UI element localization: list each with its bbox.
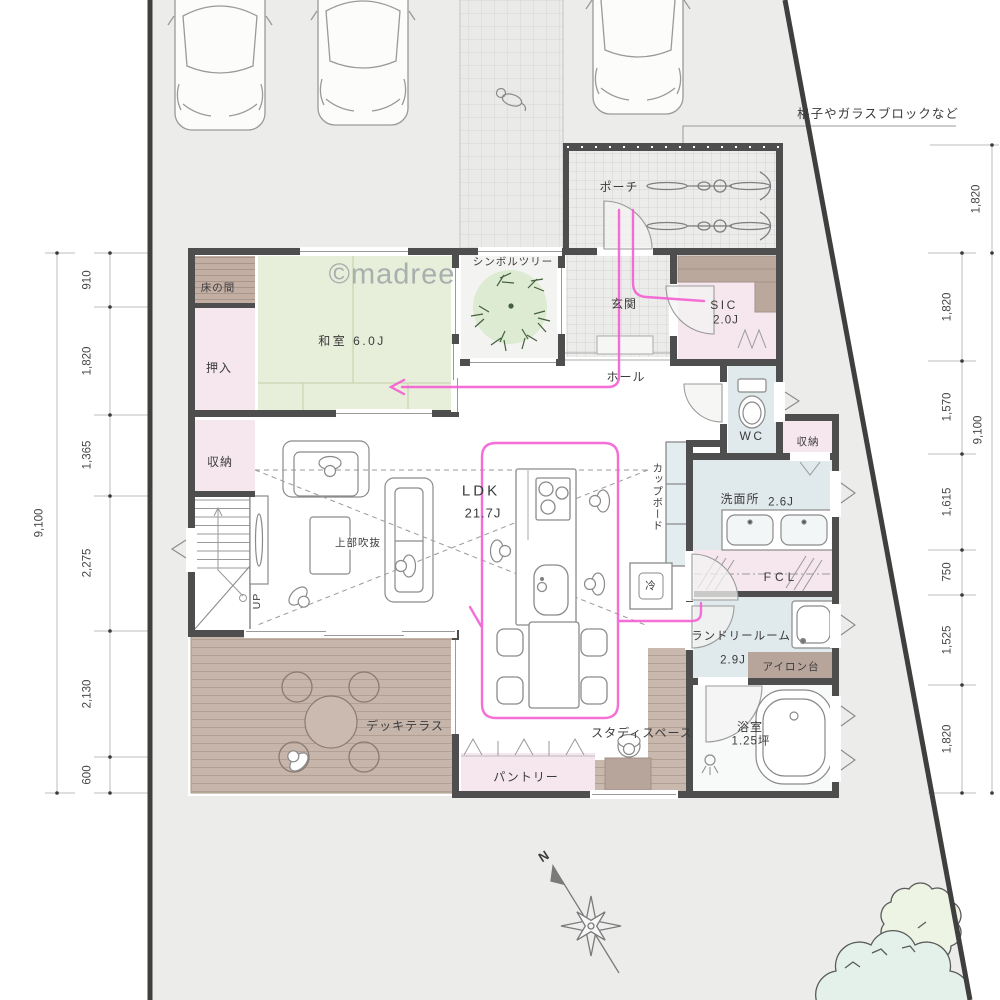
laundry-size-label: 2.9J (720, 655, 746, 667)
dining-chair (497, 629, 523, 656)
dim-right-2: 1,615 (942, 488, 954, 517)
sofa-2 (385, 478, 433, 602)
oshiire-label: 押入 (206, 362, 232, 374)
deck-terrace (191, 635, 457, 793)
toilet-tank (738, 379, 766, 392)
dim-right-3: 750 (942, 562, 954, 581)
ldk-size-label: 21.7J (465, 507, 502, 520)
study-label: スタディスペース (591, 727, 693, 739)
bath-label: 浴室 (737, 721, 763, 733)
deck-label: デッキテラス (366, 720, 444, 732)
cupboard-label: カップボード (652, 463, 663, 532)
washroom-size-label: 2.6J (768, 497, 794, 509)
symbol-tree-label: シンボルツリー (473, 257, 554, 268)
floor-plan-drawing (0, 0, 1000, 1000)
porch-floor (566, 149, 778, 250)
dim-right-5: 1,820 (942, 725, 954, 754)
dim-left-total: 9,100 (34, 509, 46, 538)
washing-machine (792, 601, 835, 648)
porch-label: ポーチ (599, 181, 638, 193)
dim-left-5: 600 (82, 765, 94, 784)
cupboard (666, 442, 688, 566)
ldk-label: LDK (462, 484, 500, 499)
fridge-label: 冷 (645, 581, 657, 592)
dim-left-3: 2,275 (82, 549, 94, 578)
sic-size-label: 2.0J (713, 315, 739, 327)
tv-board (250, 496, 268, 584)
tokonoma-label: 床の間 (201, 283, 236, 294)
lattice-note: 格子やガラスブロックなど (797, 108, 959, 121)
dim-left-1: 1,820 (82, 347, 94, 376)
pantry-label: パントリー (493, 771, 559, 783)
ironing-board-label: アイロン台 (763, 662, 820, 673)
laundry-label: ランドリールーム (691, 631, 791, 643)
dining-chair (581, 677, 607, 704)
up-label: UP (252, 593, 263, 610)
wc-label: WC (740, 430, 765, 442)
void-above-label: 上部吹抜 (333, 537, 383, 550)
hall-label: ホール (606, 371, 645, 383)
washroom-label: 洗面所 (720, 493, 759, 505)
dining-table (529, 622, 579, 708)
sic-label: SIC (710, 299, 738, 311)
watermark: ©madree (329, 261, 456, 290)
kitchen-island (516, 469, 576, 625)
dim-right-4: 1,525 (942, 626, 954, 655)
dim-left-4: 2,130 (82, 680, 94, 709)
storage-wc-label: 収納 (797, 437, 820, 448)
dim-right-top: 1,820 (971, 185, 983, 214)
walkway-tiles (460, 0, 563, 248)
entrance-label: 玄関 (611, 298, 637, 310)
bath-size-label: 1.25坪 (732, 736, 771, 748)
dim-left-0: 910 (82, 270, 94, 289)
dim-right-total: 9,100 (973, 416, 985, 445)
washitsu-label: 和室 6.0J (318, 335, 386, 347)
dining-chair (581, 629, 607, 656)
deck-table (305, 696, 357, 748)
storage-living-label: 収納 (207, 456, 233, 468)
dim-left-2: 1,365 (82, 441, 94, 470)
floor-plan: ©madree 格子やガラスブロックなど シンボルツリー ポーチ 玄関 SIC … (0, 0, 1000, 1000)
dim-right-0: 1,820 (942, 293, 954, 322)
dim-right-1: 1,570 (942, 393, 954, 422)
oshiire-floor (194, 308, 255, 410)
fcl-label: FCL (764, 571, 799, 583)
dining-chair (497, 677, 523, 704)
